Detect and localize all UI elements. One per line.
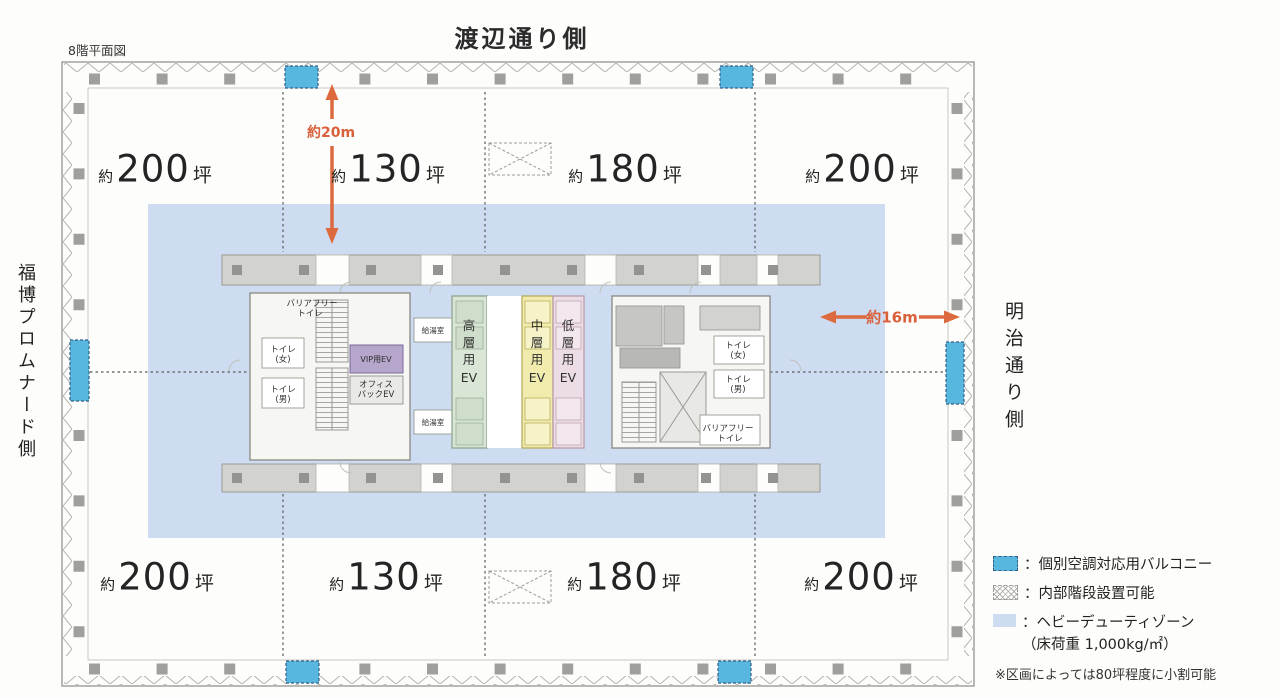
office-back-ev-label-2: バックEV bbox=[358, 390, 395, 400]
kitchenette-label-bottom: 給湯室 bbox=[422, 417, 445, 427]
vip-ev-label: VIP用EV bbox=[360, 355, 392, 364]
toilet-men-label-left: トイレ bbox=[270, 385, 296, 395]
arrow-head-right bbox=[944, 311, 960, 324]
balcony-bottom-left bbox=[286, 661, 319, 683]
barrier-free-toilet-label-right: バリアフリー bbox=[702, 424, 753, 434]
street-label-left: 福博プロムナード側 bbox=[12, 263, 38, 461]
toilet-women-label-left-2: (女) bbox=[275, 354, 290, 365]
floor-plan-page: バリアフリー トイレ トイレ (女) トイレ (男) VIP用EV オフィス バ… bbox=[0, 0, 1280, 699]
legend-label-internal-stair: ：内部階段設置可能 bbox=[1024, 582, 1155, 603]
glazing-right bbox=[964, 92, 973, 656]
legend-item-heavy-duty: ：ヘビーデューティゾーン bbox=[993, 611, 1194, 632]
machine-room-3 bbox=[620, 348, 680, 368]
legend-swatch-internal-stair bbox=[993, 585, 1018, 600]
toilet-women-label-left: トイレ bbox=[270, 345, 296, 355]
street-label-right: 明治通り側 bbox=[1000, 301, 1027, 436]
area-label-top-3: 約180坪 bbox=[568, 148, 682, 191]
legend-label-floor-load: （床荷重 1,000kg/㎡） bbox=[1022, 633, 1178, 654]
legend-label-heavy-duty: ：ヘビーデューティゾーン bbox=[1022, 611, 1194, 632]
glazing-bottom bbox=[64, 676, 972, 685]
mid-ev-label-2: 層 bbox=[531, 335, 544, 350]
office-back-ev-label: オフィス bbox=[359, 380, 393, 390]
balcony-bottom-right bbox=[718, 661, 751, 683]
high-ev-label-4: EV bbox=[461, 370, 478, 385]
balcony-right bbox=[946, 342, 964, 404]
area-label-top-1: 約200坪 bbox=[98, 148, 212, 191]
machine-room-2 bbox=[664, 306, 684, 344]
legend-label-balcony: ：個別空調対応用バルコニー bbox=[1024, 553, 1212, 574]
high-ev-label-2: 層 bbox=[463, 335, 476, 350]
low-ev-label-4: EV bbox=[560, 370, 577, 385]
area-label-bottom-1: 約200坪 bbox=[100, 556, 214, 599]
mid-ev-label-3: 用 bbox=[531, 352, 544, 367]
legend-note: ※区画によっては80坪程度に小割可能 bbox=[995, 664, 1216, 683]
barrier-free-toilet-label-left-2: トイレ bbox=[297, 309, 323, 319]
glazing-top bbox=[64, 63, 972, 72]
barrier-free-toilet-label-left: バリアフリー bbox=[286, 299, 337, 309]
toilet-men-label-right: トイレ bbox=[725, 375, 751, 385]
toilet-women-label-right-2: (女) bbox=[730, 350, 745, 361]
legend-swatch-heavy-duty bbox=[993, 614, 1016, 627]
high-ev-label-1: 高 bbox=[463, 318, 476, 333]
kitchenette-label-top: 給湯室 bbox=[422, 325, 445, 335]
dimension-label-20m: 約20m bbox=[307, 122, 355, 142]
mid-ev-label-4: EV bbox=[529, 370, 546, 385]
dimension-label-16m: 約16m bbox=[866, 307, 918, 328]
machine-room-1 bbox=[616, 306, 662, 346]
street-label-top: 渡辺通り側 bbox=[455, 19, 590, 54]
legend-item-balcony: ：個別空調対応用バルコニー bbox=[993, 553, 1212, 574]
low-ev-label-2: 層 bbox=[562, 335, 575, 350]
legend-item-internal-stair: ：内部階段設置可能 bbox=[993, 582, 1155, 603]
toilet-women-label-right: トイレ bbox=[725, 341, 751, 351]
balcony-top-left bbox=[285, 66, 318, 88]
area-label-bottom-2: 約130坪 bbox=[329, 556, 443, 599]
area-label-bottom-3: 約180坪 bbox=[567, 556, 681, 599]
low-ev-label-1: 低 bbox=[562, 318, 575, 333]
service-room bbox=[700, 306, 760, 330]
barrier-free-toilet-label-right-2: トイレ bbox=[717, 434, 743, 444]
core-left-block bbox=[250, 293, 410, 460]
arrow-head-up bbox=[326, 84, 339, 100]
toilet-men-label-right-2: (男) bbox=[730, 385, 745, 395]
area-label-bottom-4: 約200坪 bbox=[804, 556, 918, 599]
elevator-lobby bbox=[487, 296, 522, 448]
mid-ev-label-1: 中 bbox=[531, 318, 544, 333]
high-ev-label-3: 用 bbox=[463, 352, 476, 367]
low-ev-label-3: 用 bbox=[562, 352, 575, 367]
area-label-top-2: 約130坪 bbox=[331, 148, 445, 191]
toilet-men-label-left-2: (男) bbox=[275, 395, 290, 405]
legend-swatch-balcony bbox=[993, 556, 1018, 571]
area-label-top-4: 約200坪 bbox=[805, 148, 919, 191]
plan-title: 8階平面図 bbox=[68, 40, 126, 59]
balcony-top-right bbox=[720, 66, 753, 88]
balcony-left bbox=[70, 340, 89, 401]
